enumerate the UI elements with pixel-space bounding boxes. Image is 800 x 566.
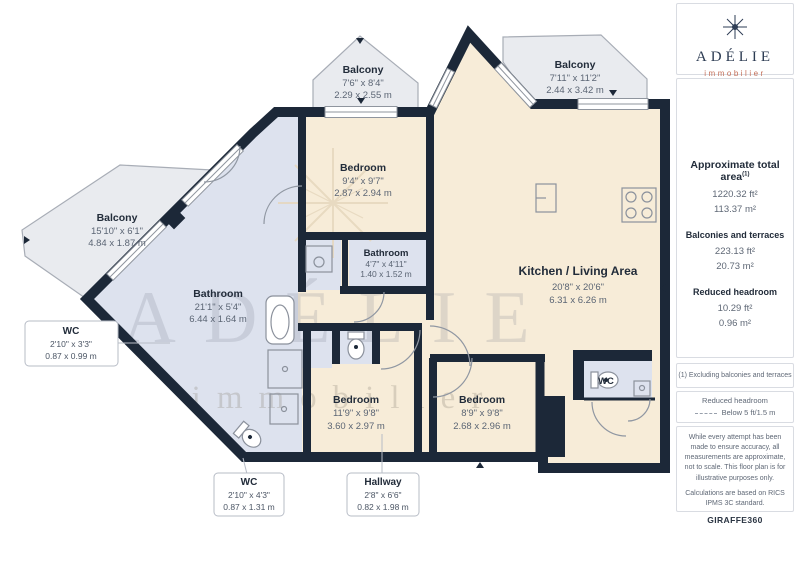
total-area-ft: 1220.32 ft² (677, 187, 793, 202)
total-area-title: Approximate total area(1) (677, 159, 793, 183)
legend-item: Below 5 ft/1.5 m (722, 408, 776, 417)
headroom-m: 0.96 m² (677, 316, 793, 331)
dashed-line-swatch (695, 413, 717, 414)
svg-text:Bedroom: Bedroom (340, 162, 386, 174)
room-label-bedroom-right: Bedroom 8'9" x 9'8" 2.68 x 2.96 m (453, 394, 511, 432)
logo-name: ADÉLIE (677, 49, 793, 66)
logo-tagline: immobilier (677, 69, 793, 78)
snowflake-icon (722, 14, 748, 40)
brand-suffix: 360 (747, 515, 762, 525)
legend-row: Below 5 ft/1.5 m (677, 408, 793, 417)
total-area-m: 113.37 m² (677, 202, 793, 217)
svg-text:Kitchen / Living Area: Kitchen / Living Area (519, 264, 638, 278)
svg-text:Bedroom: Bedroom (459, 394, 505, 406)
svg-text:4.84 x 1.87 m: 4.84 x 1.87 m (88, 238, 146, 249)
svg-text:Bedroom: Bedroom (333, 394, 379, 406)
disclaimer-text-2: Calculations are based on RICS IPMS 3C s… (683, 489, 787, 509)
headroom-ft: 10.29 ft² (677, 301, 793, 316)
floorplan-drawing: ADÉLIE immobilier (0, 0, 674, 566)
svg-text:21'1" x 5'4": 21'1" x 5'4" (195, 302, 242, 313)
room-label-bathroom-long: Bathroom 21'1" x 5'4" 6.44 x 1.64 m (189, 288, 247, 325)
svg-text:20'8" x 20'6": 20'8" x 20'6" (552, 282, 604, 293)
callout-hallway: Hallway 2'8" x 6'6" 0.82 x 1.98 m (347, 473, 419, 516)
svg-text:8'9" x 9'8": 8'9" x 9'8" (461, 408, 503, 419)
balconies-ft: 223.13 ft² (677, 244, 793, 259)
window-kitchen-top (578, 99, 648, 110)
svg-text:1.40 x 1.52 m: 1.40 x 1.52 m (360, 269, 412, 279)
room-label-balcony-left: Balcony 15'10" x 6'1" 4.84 x 1.87 m (88, 212, 146, 249)
giraffe360-brand: GIRAFFE360 (683, 514, 787, 526)
balcony-top-shape (313, 36, 418, 117)
bathtub-icon (266, 296, 294, 344)
legend-title: Reduced headroom (677, 396, 793, 405)
svg-text:0.87 x 0.99 m: 0.87 x 0.99 m (45, 351, 97, 361)
callout-wc-left: WC 2'10" x 3'3" 0.87 x 0.99 m (25, 321, 118, 366)
floorplan-page: ADÉLIE immobilier (0, 0, 800, 566)
callout-wc-bottom: WC 2'10" x 4'3" 0.87 x 1.31 m (214, 473, 284, 516)
svg-text:Balcony: Balcony (97, 212, 138, 224)
toilet-icon (348, 332, 364, 359)
svg-text:6.31 x 6.26 m: 6.31 x 6.26 m (549, 295, 607, 306)
room-label-bedroom-left: Bedroom 11'9" x 9'8" 3.60 x 2.97 m (327, 394, 385, 432)
room-label-bathroom-small: Bathroom 4'7" x 4'11" 1.40 x 1.52 m (360, 248, 412, 279)
svg-text:15'10" x 6'1": 15'10" x 6'1" (91, 226, 143, 237)
svg-text:Bathroom: Bathroom (364, 248, 409, 259)
area-summary-box: Approximate total area(1) 1220.32 ft² 11… (676, 78, 794, 358)
svg-text:2.29 x 2.55 m: 2.29 x 2.55 m (334, 90, 392, 101)
brand-name: GIRAFFE (707, 515, 747, 525)
sidebar: ADÉLIE immobilier Approximate total area… (674, 0, 800, 566)
svg-text:2.68 x 2.96 m: 2.68 x 2.96 m (453, 421, 511, 432)
svg-text:9'4" x 9'7": 9'4" x 9'7" (342, 176, 384, 187)
svg-text:2'10" x 4'3": 2'10" x 4'3" (228, 490, 270, 500)
legend-box: Reduced headroom Below 5 ft/1.5 m (676, 391, 794, 423)
disclaimer-text-1: While every attempt has been made to ens… (683, 433, 787, 484)
total-area-title-text: Approximate total area (690, 159, 779, 183)
svg-text:Hallway: Hallway (364, 477, 402, 488)
svg-text:WC: WC (241, 477, 258, 488)
svg-text:2.44 x 3.42 m: 2.44 x 3.42 m (546, 85, 604, 96)
svg-text:WC: WC (63, 326, 80, 337)
svg-text:2.87 x 2.94 m: 2.87 x 2.94 m (334, 188, 392, 199)
svg-text:7'6" x 8'4": 7'6" x 8'4" (342, 78, 384, 89)
room-label-wc-right: WC (598, 376, 614, 387)
headroom-title: Reduced headroom (677, 287, 793, 297)
svg-text:7'11" x 11'2": 7'11" x 11'2" (550, 73, 601, 84)
window-bedroom-top (325, 107, 397, 118)
disclaimer-box: While every attempt has been made to ens… (676, 426, 794, 512)
footnote-marker: (1) (742, 172, 749, 178)
svg-text:2'8" x 6'6": 2'8" x 6'6" (364, 490, 401, 500)
svg-text:3.60 x 2.97 m: 3.60 x 2.97 m (327, 421, 385, 432)
svg-text:Balcony: Balcony (343, 64, 384, 76)
svg-text:4'7" x 4'11": 4'7" x 4'11" (365, 259, 406, 269)
room-label-bedroom-top: Bedroom 9'4" x 9'7" 2.87 x 2.94 m (334, 162, 392, 199)
svg-text:Bathroom: Bathroom (193, 288, 243, 300)
svg-text:0.82 x 1.98 m: 0.82 x 1.98 m (357, 502, 409, 512)
balconies-m: 20.73 m² (677, 259, 793, 274)
room-label-balcony-top: Balcony 7'6" x 8'4" 2.29 x 2.55 m (334, 64, 392, 101)
svg-text:6.44 x 1.64 m: 6.44 x 1.64 m (189, 314, 247, 325)
svg-text:0.87 x 1.31 m: 0.87 x 1.31 m (223, 502, 275, 512)
room-label-balcony-right: Balcony 7'11" x 11'2" 2.44 x 3.42 m (546, 59, 604, 96)
svg-text:Balcony: Balcony (555, 59, 596, 71)
footnote-box: (1) Excluding balconies and terraces (676, 363, 794, 388)
svg-text:2'10" x 3'3": 2'10" x 3'3" (50, 339, 92, 349)
svg-text:11'9" x 9'8": 11'9" x 9'8" (333, 408, 379, 419)
balconies-title: Balconies and terraces (677, 230, 793, 240)
logo-box: ADÉLIE immobilier (676, 3, 794, 75)
